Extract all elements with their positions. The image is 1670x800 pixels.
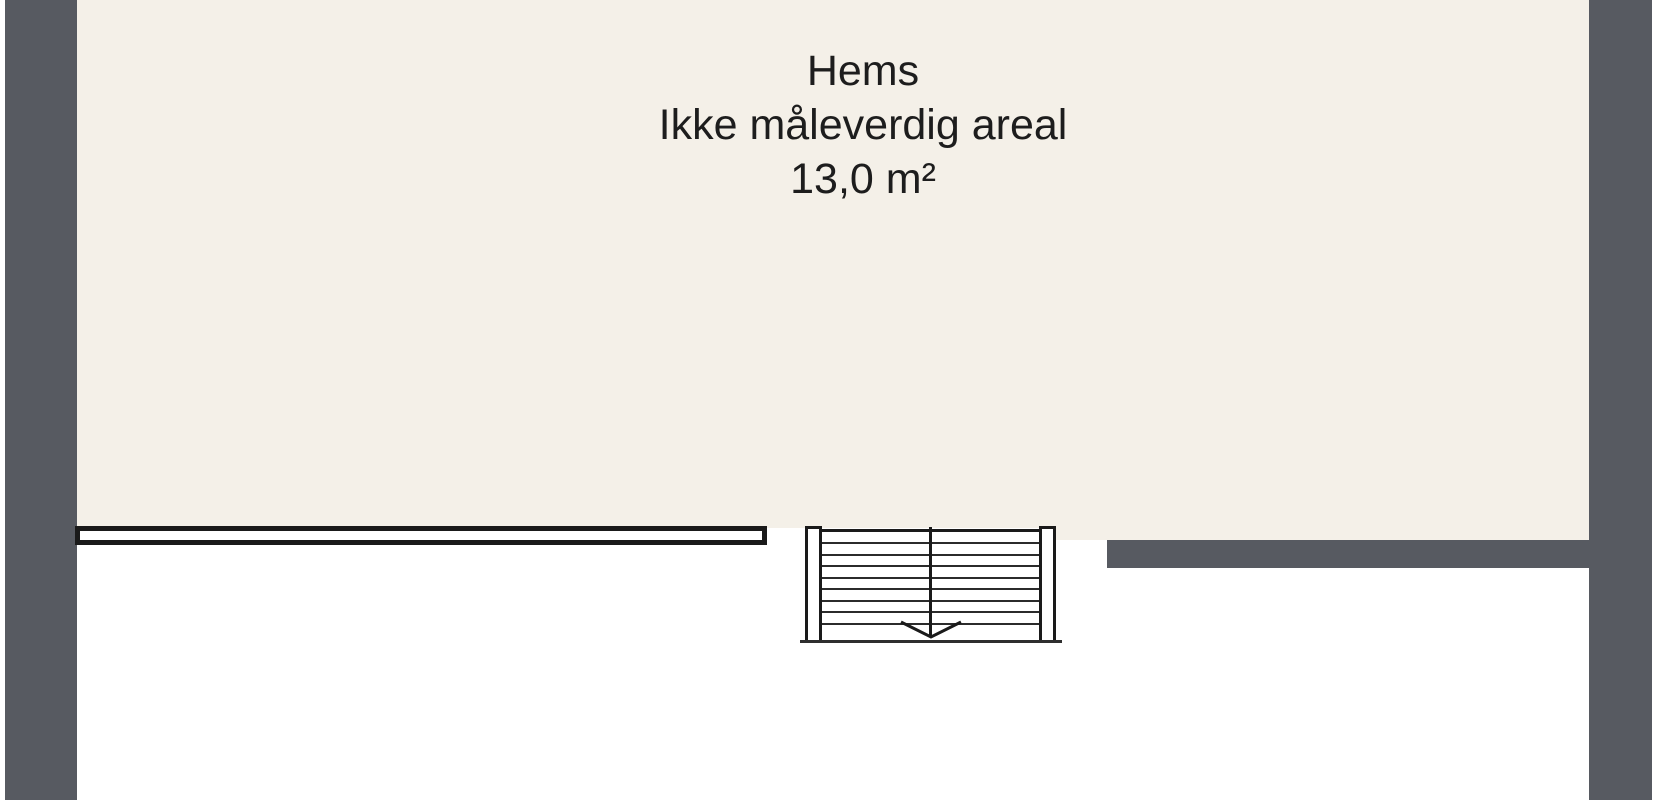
stair-step	[931, 577, 1039, 579]
stair-step	[822, 577, 930, 579]
east-wall-segment	[1107, 540, 1589, 568]
stair-step	[931, 588, 1039, 590]
stair-step	[822, 554, 930, 556]
stair-step	[931, 565, 1039, 567]
stair-step	[822, 600, 930, 602]
stair-step	[822, 588, 930, 590]
stair-bottom-edge	[800, 640, 1062, 643]
stair-step	[931, 554, 1039, 556]
left-wall	[5, 0, 77, 800]
loft-floor-extension	[1045, 528, 1589, 540]
room-label: Hems Ikke måleverdig areal 13,0 m²	[563, 44, 1163, 206]
stair-step	[931, 542, 1039, 544]
floorplan-canvas: Hems Ikke måleverdig areal 13,0 m²	[0, 0, 1670, 800]
stair-right-stringer	[1039, 526, 1056, 643]
stair-step	[822, 542, 930, 544]
right-wall	[1589, 0, 1652, 800]
stair-down-arrow-icon	[899, 620, 963, 640]
stair-step	[931, 600, 1039, 602]
stair-left-stringer	[805, 526, 822, 643]
stair-step	[931, 611, 1039, 613]
stair-step	[822, 611, 930, 613]
room-area-value: 13,0 m²	[563, 152, 1163, 206]
stair-step	[822, 565, 930, 567]
room-name: Hems	[563, 44, 1163, 98]
loft-railing	[75, 526, 767, 545]
room-area-note: Ikke måleverdig areal	[563, 98, 1163, 152]
